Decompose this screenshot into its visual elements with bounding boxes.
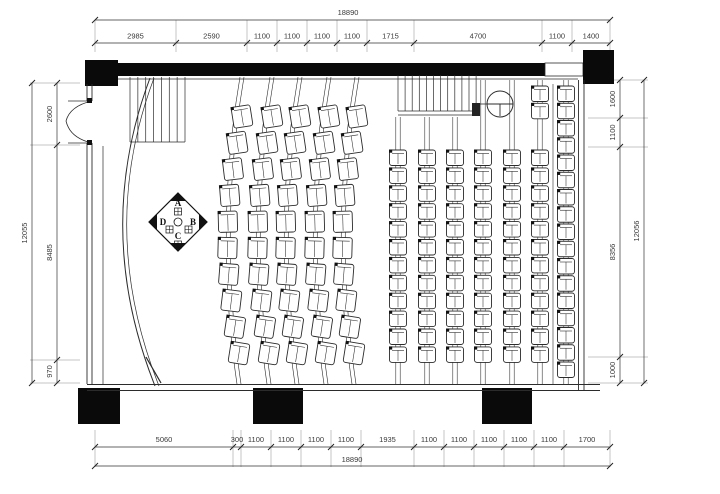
dimension-label: 1100 (248, 435, 264, 444)
straight-seating-block (389, 80, 549, 384)
seat (474, 150, 492, 166)
seat (446, 150, 464, 166)
seat (307, 288, 329, 312)
column-bottom-middle (253, 388, 303, 424)
seat (306, 184, 327, 207)
seat (389, 167, 407, 183)
seat (418, 185, 436, 201)
seat (503, 185, 521, 201)
dimension-label: 2590 (203, 32, 220, 41)
seat (446, 221, 464, 237)
curved-seating-block (217, 77, 368, 384)
seat (531, 257, 549, 273)
seat (531, 293, 549, 309)
seat (250, 288, 272, 312)
column-bottom-left (78, 388, 120, 424)
dimension-label: 18890 (338, 8, 359, 17)
seat (304, 237, 324, 259)
dimension-label: C (175, 231, 182, 241)
dimension-label: D (160, 217, 167, 227)
dimension-label: 1100 (344, 32, 360, 41)
seat (474, 203, 492, 219)
seat (557, 310, 575, 326)
seat (446, 293, 464, 309)
seat (446, 239, 464, 255)
seat (305, 263, 326, 286)
wall-seat-column (557, 80, 575, 384)
top-wall (118, 63, 545, 76)
column-bottom-right (482, 388, 532, 424)
dimension-label: 12055 (20, 223, 29, 244)
seat (531, 185, 549, 201)
seat (474, 257, 492, 273)
seat (249, 184, 270, 207)
seat (474, 167, 492, 183)
screen-curve (123, 78, 161, 386)
seat (474, 346, 492, 362)
seat (557, 172, 575, 188)
seat (418, 221, 436, 237)
dimension-label: 1100 (338, 435, 354, 444)
dimension-bottom: 5060300110011001100110019351100110011001… (92, 430, 613, 469)
seat (557, 293, 575, 309)
seat (226, 131, 248, 155)
seat (531, 275, 549, 291)
seat (338, 315, 360, 339)
dimension-label: 8356 (608, 244, 617, 261)
seat (389, 257, 407, 273)
seat (557, 120, 575, 136)
dimension-label: 18890 (342, 455, 363, 464)
seat (446, 257, 464, 273)
seat (418, 346, 436, 362)
seat (277, 184, 298, 207)
seat (474, 311, 492, 327)
seat (418, 150, 436, 166)
seat (337, 157, 359, 181)
seat (474, 239, 492, 255)
seat (474, 185, 492, 201)
seat (253, 315, 275, 339)
stairs-top-left (130, 77, 185, 142)
seat (531, 346, 549, 362)
seat (313, 131, 335, 155)
seat (531, 103, 549, 119)
seat (257, 341, 280, 365)
dimension-label: 2985 (127, 32, 144, 41)
seat (335, 288, 357, 312)
seat (446, 275, 464, 291)
seat (503, 346, 521, 362)
dimension-label: 1100 (308, 435, 324, 444)
seat (260, 104, 283, 128)
seat (557, 103, 575, 119)
dimension-label: 970 (45, 365, 54, 378)
seat (275, 237, 295, 259)
seat (305, 210, 325, 232)
seat (389, 221, 407, 237)
seat (503, 329, 521, 345)
dimension-label: 1100 (278, 435, 294, 444)
seat (474, 275, 492, 291)
seat (334, 184, 355, 207)
seat (332, 237, 352, 259)
seat (256, 131, 278, 155)
dimension-label: 1700 (579, 435, 596, 444)
dimension-label: B (190, 217, 196, 227)
dimension-label: 1100 (451, 435, 467, 444)
seat (531, 221, 549, 237)
seat (389, 150, 407, 166)
seat (284, 131, 306, 155)
top-door-opening (545, 63, 583, 76)
seat (418, 257, 436, 273)
seat (474, 293, 492, 309)
seat (285, 341, 308, 365)
dimension-label: 1000 (608, 362, 617, 379)
dimension-label: 1100 (421, 435, 437, 444)
seat (503, 239, 521, 255)
dimension-label: 2600 (45, 106, 54, 123)
seat (446, 185, 464, 201)
dimension-label: 8485 (45, 244, 54, 261)
dimension-label: 1100 (511, 435, 527, 444)
seat (223, 315, 245, 339)
seat (333, 210, 353, 232)
seat (389, 239, 407, 255)
seat (219, 184, 240, 207)
seat (557, 327, 575, 343)
seat (389, 346, 407, 362)
seat (389, 293, 407, 309)
seat (278, 288, 300, 312)
seat (314, 341, 337, 365)
seat (345, 104, 368, 128)
seat (218, 210, 238, 232)
seat (446, 167, 464, 183)
seat (446, 329, 464, 345)
seat (557, 258, 575, 274)
seat (309, 157, 331, 181)
seat (389, 185, 407, 201)
seat (446, 203, 464, 219)
seat (276, 210, 296, 232)
seat (418, 203, 436, 219)
seat (280, 157, 302, 181)
seat (557, 206, 575, 222)
seat (474, 329, 492, 345)
seat (531, 167, 549, 183)
seat (418, 293, 436, 309)
seat (503, 150, 521, 166)
seat (531, 329, 549, 345)
center-emblem: ABCD (149, 193, 207, 251)
seat (341, 131, 363, 155)
seat (446, 311, 464, 327)
dimension-label: 1600 (608, 91, 617, 108)
seat (333, 263, 354, 286)
seat (222, 157, 244, 181)
seat (557, 137, 575, 153)
seat (217, 237, 237, 259)
floor-plan-svg: 1889029852590110011001100110017154700110… (0, 0, 720, 494)
seat (389, 203, 407, 219)
dimension-label: 1100 (541, 435, 557, 444)
seat (557, 362, 575, 378)
dimension-label: 1100 (254, 32, 270, 41)
dimension-label: 12056 (632, 221, 641, 242)
door-left (66, 98, 92, 145)
dimension-label: 1100 (549, 32, 565, 41)
seat (557, 224, 575, 240)
seat (220, 288, 242, 312)
seat (288, 104, 311, 128)
seat (276, 263, 297, 286)
seat (389, 329, 407, 345)
dimension-label: A (175, 198, 182, 208)
seat (557, 155, 575, 171)
seat (248, 210, 268, 232)
seat (248, 263, 269, 286)
seat (503, 257, 521, 273)
seat (317, 104, 340, 128)
dimension-label: 1100 (314, 32, 330, 41)
dimension-right: 160011008356100012056 (588, 77, 648, 386)
seat (557, 344, 575, 360)
seat (342, 341, 365, 365)
seat (418, 275, 436, 291)
dimension-label: 1400 (583, 32, 600, 41)
seat (474, 221, 492, 237)
dimension-label: 1100 (608, 124, 617, 140)
seat (503, 203, 521, 219)
seat (531, 86, 549, 102)
seat (252, 157, 274, 181)
column-top-right (583, 50, 614, 84)
dimension-label: 1715 (382, 32, 399, 41)
floor-plan-page: 1889029852590110011001100110017154700110… (0, 0, 720, 494)
seat (531, 239, 549, 255)
seat (247, 237, 267, 259)
dimension-label: 4700 (470, 32, 487, 41)
seat (503, 275, 521, 291)
dimension-left: 2600848597012055 (20, 80, 80, 386)
seat (557, 86, 575, 102)
entry-steps (398, 75, 480, 116)
seat (557, 241, 575, 257)
seat (531, 203, 549, 219)
newel-post (472, 103, 480, 116)
seat (531, 150, 549, 166)
seat (418, 311, 436, 327)
seat (531, 311, 549, 327)
seat (389, 311, 407, 327)
seat (418, 329, 436, 345)
seat (503, 293, 521, 309)
seat (557, 189, 575, 205)
dimension-label: 1100 (481, 435, 497, 444)
seat (446, 346, 464, 362)
dimension-label: 300 (231, 435, 244, 444)
dimension-top: 1889029852590110011001100110017154700110… (92, 8, 613, 52)
seat (503, 311, 521, 327)
seat (557, 275, 575, 291)
seat (281, 315, 303, 339)
dimension-label: 1935 (379, 435, 396, 444)
seat (310, 315, 332, 339)
dimension-label: 1100 (284, 32, 300, 41)
seat (389, 275, 407, 291)
seat (218, 263, 239, 286)
seat (227, 341, 250, 365)
seat (418, 167, 436, 183)
column-top-left (85, 60, 118, 86)
seat (503, 221, 521, 237)
seat (418, 239, 436, 255)
seat (230, 104, 253, 128)
seat (503, 167, 521, 183)
dimension-label: 5060 (156, 435, 173, 444)
